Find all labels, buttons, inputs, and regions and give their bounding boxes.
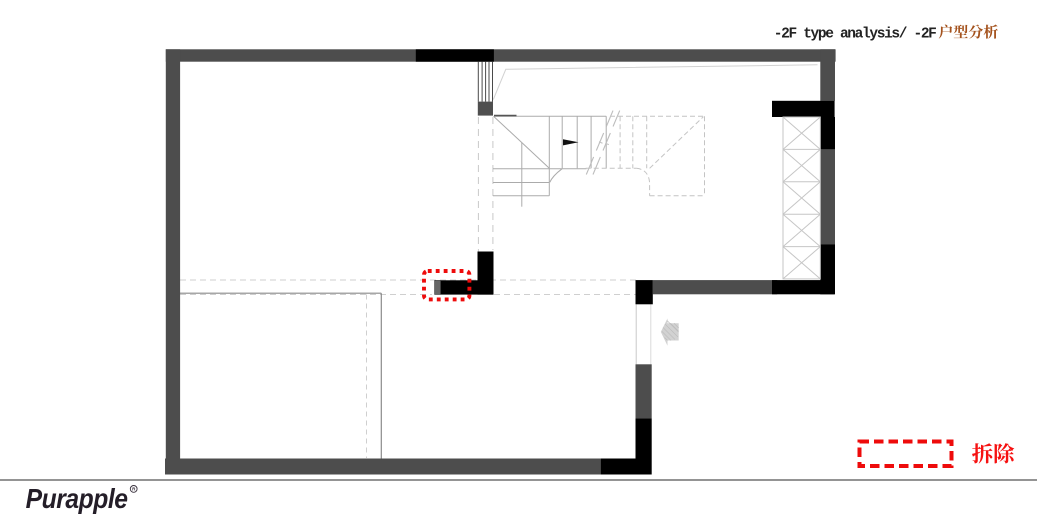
svg-text:-2F type analysis/ -2F: -2F type analysis/ -2F <box>774 27 936 43</box>
svg-text:Purapple: Purapple <box>26 482 128 514</box>
svg-text:R: R <box>132 487 136 492</box>
